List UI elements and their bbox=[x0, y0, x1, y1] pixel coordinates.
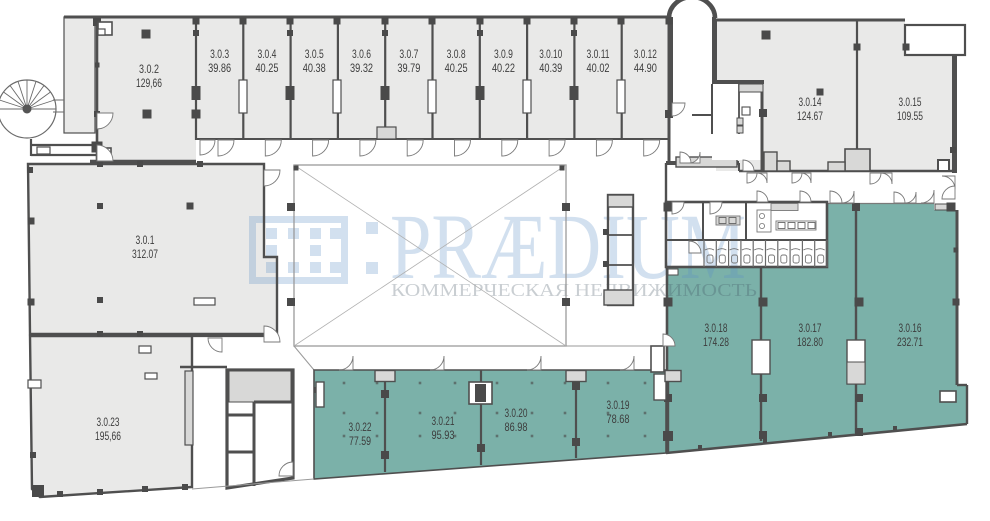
svg-text:40.25: 40.25 bbox=[445, 61, 468, 75]
svg-text:3.0.8: 3.0.8 bbox=[447, 47, 466, 61]
svg-text:3.0.23: 3.0.23 bbox=[97, 415, 120, 429]
svg-text:3.0.12: 3.0.12 bbox=[634, 47, 657, 61]
svg-text:3.0.20: 3.0.20 bbox=[505, 406, 528, 420]
svg-text:40.22: 40.22 bbox=[492, 61, 515, 75]
svg-text:109.55: 109.55 bbox=[897, 109, 923, 123]
svg-text:39.79: 39.79 bbox=[397, 61, 420, 75]
svg-text:3.0.6: 3.0.6 bbox=[352, 47, 371, 61]
svg-text:3.0.16: 3.0.16 bbox=[899, 321, 922, 335]
svg-text:3.0.11: 3.0.11 bbox=[587, 47, 610, 61]
svg-text:КОММЕРЧЕСКАЯ НЕДВИЖИМОСТЬ: КОММЕРЧЕСКАЯ НЕДВИЖИМОСТЬ bbox=[391, 280, 757, 300]
svg-text:174.28: 174.28 bbox=[703, 335, 729, 349]
svg-text:40.38: 40.38 bbox=[303, 61, 326, 75]
svg-text:124.67: 124.67 bbox=[797, 109, 823, 123]
svg-text:3.0.7: 3.0.7 bbox=[399, 47, 418, 61]
svg-text:3.0.17: 3.0.17 bbox=[799, 321, 822, 335]
svg-text:312.07: 312.07 bbox=[132, 247, 158, 261]
svg-text:39.86: 39.86 bbox=[208, 61, 231, 75]
svg-text:182.80: 182.80 bbox=[797, 335, 823, 349]
svg-text:95.93: 95.93 bbox=[432, 428, 455, 442]
svg-text:3.0.10: 3.0.10 bbox=[539, 47, 562, 61]
svg-text:44.90: 44.90 bbox=[634, 61, 657, 75]
svg-text:40.02: 40.02 bbox=[587, 61, 610, 75]
svg-text:3.0.18: 3.0.18 bbox=[705, 321, 728, 335]
svg-text:3.0.19: 3.0.19 bbox=[607, 398, 630, 412]
svg-text:3.0.21: 3.0.21 bbox=[432, 414, 455, 428]
svg-text:3.0.1: 3.0.1 bbox=[136, 233, 155, 247]
svg-text:3.0.14: 3.0.14 bbox=[799, 95, 822, 109]
svg-text:40.25: 40.25 bbox=[255, 61, 278, 75]
svg-text:78.68: 78.68 bbox=[607, 412, 630, 426]
svg-text:39.32: 39.32 bbox=[350, 61, 373, 75]
svg-text:129,66: 129,66 bbox=[136, 76, 162, 90]
svg-text:232.71: 232.71 bbox=[897, 335, 923, 349]
svg-text:86.98: 86.98 bbox=[505, 420, 528, 434]
svg-text:3.0.5: 3.0.5 bbox=[305, 47, 324, 61]
svg-text:77.59: 77.59 bbox=[349, 434, 371, 448]
svg-text:3.0.15: 3.0.15 bbox=[899, 95, 922, 109]
svg-text:3.0.22: 3.0.22 bbox=[349, 420, 372, 434]
svg-text:3.0.9: 3.0.9 bbox=[494, 47, 513, 61]
svg-text:3.0.4: 3.0.4 bbox=[257, 47, 276, 61]
svg-text:195,66: 195,66 bbox=[95, 429, 121, 443]
svg-text:3.0.3: 3.0.3 bbox=[210, 47, 229, 61]
svg-text:40.39: 40.39 bbox=[539, 61, 562, 75]
svg-text:3.0.2: 3.0.2 bbox=[139, 62, 159, 76]
